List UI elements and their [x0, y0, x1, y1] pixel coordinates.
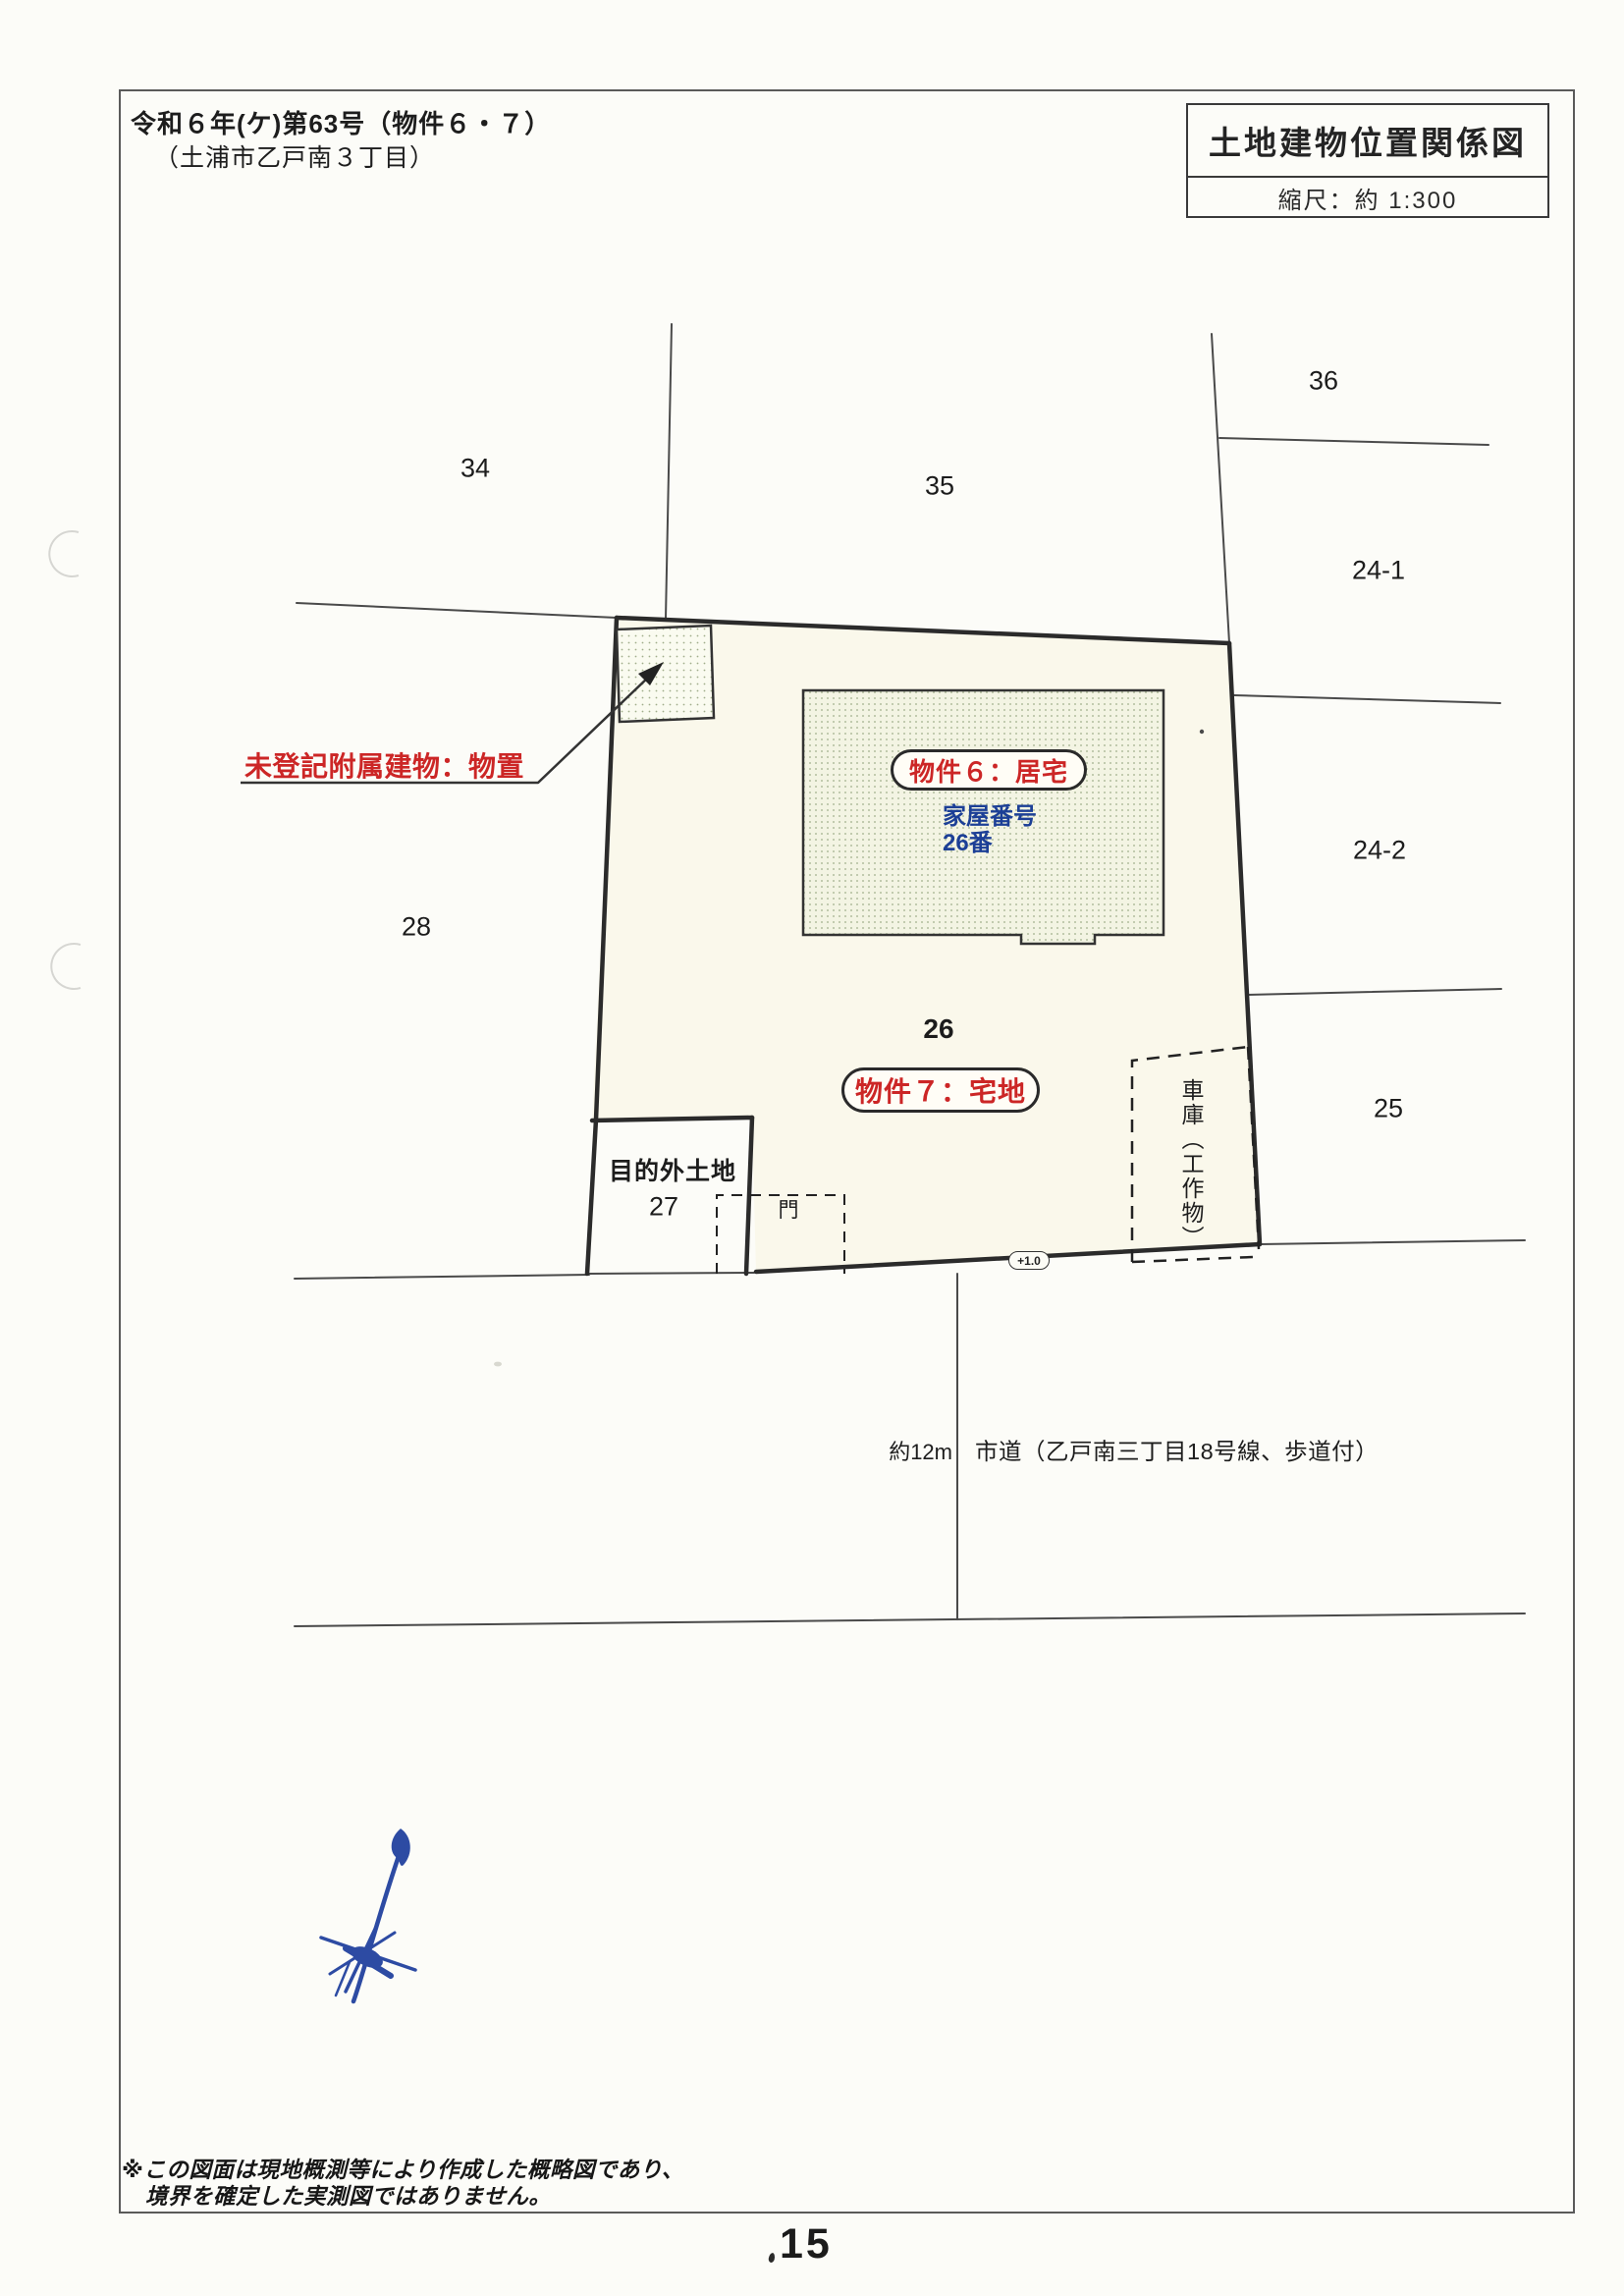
- site-plan-svg: [0, 0, 1624, 2296]
- parcel-label-36: 36: [1309, 366, 1338, 397]
- road-name-label: 市道（乙戸南三丁目18号線、歩道付）: [975, 1433, 1379, 1466]
- unregistered-annex-note: 未登記附属建物：物置: [244, 745, 524, 785]
- disclaimer-line2: 境界を確定した実測図ではありません。: [145, 2179, 551, 2211]
- parcel-label-26: 26: [923, 1013, 953, 1045]
- house-number-line1: 家屋番号: [943, 803, 1037, 830]
- binder-hole-icon: [49, 531, 79, 576]
- road-width-label: 約12m: [870, 1435, 952, 1466]
- title-box: 土地建物位置関係図 縮尺：約 1:300: [1186, 103, 1549, 218]
- page-number: 15: [780, 2220, 833, 2269]
- parcel-label-25: 25: [1374, 1094, 1403, 1124]
- gate-label: 門: [779, 1194, 799, 1224]
- storage-shed-outline: [617, 626, 714, 722]
- ink-speck: [1200, 730, 1204, 734]
- case-location: （土浦市乙戸南３丁目）: [154, 138, 435, 174]
- house-number-line2: 26番: [943, 830, 1037, 856]
- non-purpose-land-label: 目的外土地: [609, 1152, 736, 1187]
- parcel-label-35: 35: [925, 471, 954, 502]
- parcel-label-28: 28: [402, 912, 431, 943]
- parcel-label-34: 34: [460, 454, 490, 484]
- scanned-document-page: 令和６年(ケ)第63号（物件６・７） （土浦市乙戸南３丁目） 土地建物位置関係図…: [0, 0, 1624, 2296]
- binder-hole-icon: [51, 944, 81, 989]
- case-number: 令和６年(ケ)第63号（物件６・７）: [131, 104, 551, 140]
- north-arrow-icon: [321, 1829, 415, 2001]
- parcel-label-24-2: 24-2: [1353, 836, 1406, 866]
- elevation-marker: +1.0: [1008, 1251, 1050, 1270]
- parcel-label-24-1: 24-1: [1352, 556, 1405, 586]
- parcel-label-27: 27: [649, 1192, 678, 1223]
- drawing-scale: 縮尺：約 1:300: [1188, 178, 1547, 217]
- drawing-title: 土地建物位置関係図: [1188, 105, 1547, 178]
- property6-badge: 物件６：居宅: [891, 749, 1087, 791]
- house-number-label: 家屋番号 26番: [943, 803, 1037, 856]
- scan-smudge: [494, 1362, 502, 1367]
- property7-badge: 物件７：宅地: [841, 1067, 1040, 1113]
- garage-label: 車庫（工作物）: [1174, 1078, 1208, 1270]
